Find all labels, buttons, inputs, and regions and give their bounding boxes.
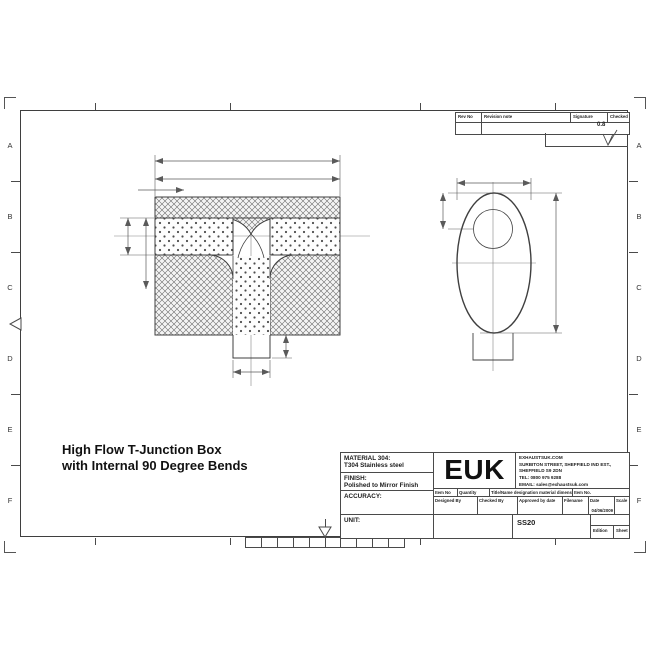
col-quantity: Quantity — [458, 489, 490, 497]
grid-letter-right: D — [633, 354, 645, 363]
title-block: MATERIAL 304: T304 Stainless steel FINIS… — [340, 452, 630, 539]
grid-letter-left: B — [4, 212, 16, 221]
trim-mark — [4, 552, 16, 553]
col-itemno: Item No — [434, 489, 458, 497]
company-info: EXHAUSTSUK.COM SURBITON STREET, SHEFFIEL… — [516, 453, 629, 489]
grid-tick — [629, 394, 638, 395]
col-designation: Title/Name designation material dimensio… — [490, 489, 573, 497]
trim-mark — [4, 97, 5, 109]
bottom-empty-cell — [434, 515, 513, 538]
accuracy-label: ACCURACY: — [344, 493, 433, 500]
finish-cell: FINISH: Polished to Mirror Finish — [341, 473, 434, 491]
company-line: SHEFFIELD S9 2DN — [519, 468, 629, 475]
material-cell: MATERIAL 304: T304 Stainless steel — [341, 453, 434, 473]
drawing-sheet: A B C D E F A B C D E F Rev No Revision … — [0, 0, 650, 650]
trim-mark — [634, 552, 646, 553]
center-mark-left-icon — [8, 317, 22, 331]
finish-value: Polished to Mirror Finish — [344, 482, 433, 489]
grid-tick — [629, 181, 638, 182]
unit-label: UNIT: — [344, 517, 433, 524]
grid-tick — [629, 252, 638, 253]
grid-letter-left: A — [4, 141, 16, 150]
trim-mark — [634, 97, 646, 98]
checked-by-cell: Checked By — [478, 497, 518, 515]
grid-tick — [230, 538, 231, 545]
unit-cell: UNIT: — [341, 515, 434, 538]
grid-letter-right: E — [633, 425, 645, 434]
scale-cell: Scale — [615, 497, 629, 515]
designed-by-cell: Designed By — [434, 497, 478, 515]
trim-mark — [4, 97, 16, 98]
company-line: TEL: 0800 975 9288 — [519, 475, 629, 482]
grid-tick — [230, 103, 231, 110]
revision-col-note: Revision note — [482, 113, 571, 123]
grid-letter-left: D — [4, 354, 16, 363]
grid-tick — [555, 538, 556, 545]
grid-tick — [95, 538, 96, 545]
date-label: Date — [590, 498, 599, 503]
grid-letter-left: E — [4, 425, 16, 434]
surface-finish-icon — [601, 128, 619, 148]
grid-letter-right: C — [633, 283, 645, 292]
part-number-cell: SS20 — [513, 515, 591, 538]
grid-tick — [420, 538, 421, 545]
sheet-cell: Sheet — [614, 525, 629, 538]
grid-letter-left: C — [4, 283, 16, 292]
grid-letter-right: B — [633, 212, 645, 221]
grid-tick — [420, 103, 421, 110]
material-value: T304 Stainless steel — [344, 462, 433, 469]
grid-tick — [629, 465, 638, 466]
date-value: 04/06/2009 — [591, 508, 613, 513]
col-itemno2: Item No. — [573, 489, 629, 497]
company-line: SURBITON STREET, SHEFFIELD IND EST., — [519, 462, 629, 469]
company-logo: EUK — [434, 453, 516, 489]
grid-tick — [11, 252, 20, 253]
date-cell: Date 04/06/2009 — [589, 497, 615, 515]
grid-tick — [11, 181, 20, 182]
drawing-title: High Flow T-Junction Box with Internal 9… — [62, 442, 248, 473]
grid-tick — [11, 394, 20, 395]
grid-letter-right: F — [633, 496, 645, 505]
grid-tick — [11, 465, 20, 466]
grid-letter-left: F — [4, 496, 16, 505]
finish-label: FINISH: — [344, 475, 433, 482]
drawing-title-line1: High Flow T-Junction Box — [62, 442, 248, 458]
grid-letter-right: A — [633, 141, 645, 150]
material-label: MATERIAL 304: — [344, 455, 433, 462]
filename-cell: Filename — [563, 497, 589, 515]
revision-row-divider — [481, 123, 482, 134]
company-line: EMAIL: sales@exhaustsuk.com — [519, 482, 629, 489]
company-line: EXHAUSTSUK.COM — [519, 455, 629, 462]
grid-tick — [95, 103, 96, 110]
edition-cell: Edition — [591, 525, 614, 538]
approved-by-cell: Approved by date — [518, 497, 563, 515]
grid-tick — [555, 103, 556, 110]
accuracy-cell: ACCURACY: — [341, 491, 434, 515]
drawing-title-line2: with Internal 90 Degree Bends — [62, 458, 248, 474]
revision-col-revno: Rev No — [456, 113, 482, 123]
trim-mark — [645, 97, 646, 109]
